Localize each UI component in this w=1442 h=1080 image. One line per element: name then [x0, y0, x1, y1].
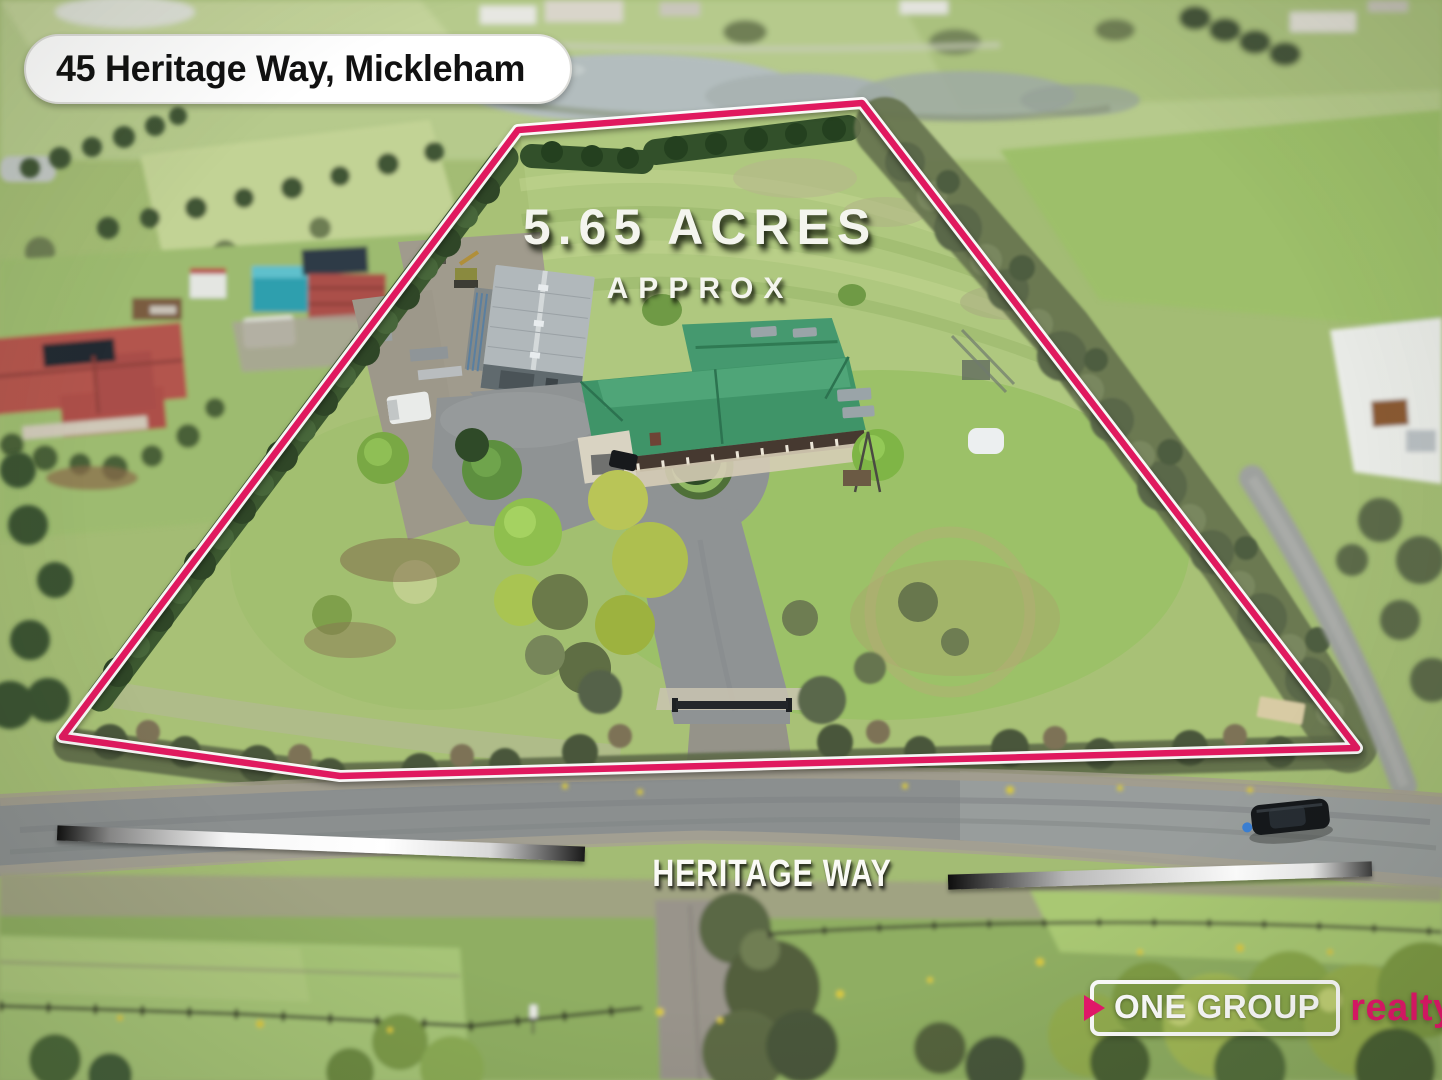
listing-photo: 45 Heritage Way, Mickleham 5.65 ACRES AP… — [0, 0, 1442, 1080]
acreage-qualifier: APPROX — [470, 272, 930, 306]
agency-brand-text: ONE GROUP — [1114, 988, 1320, 1025]
acreage-label: 5.65 ACRES APPROX — [470, 198, 930, 306]
agency-logo: ONE GROUP realty — [1090, 980, 1442, 1036]
address-text: 45 Heritage Way, Mickleham — [56, 48, 525, 90]
agency-suffix-text: realty — [1350, 987, 1442, 1030]
road-name-label: HERITAGE WAY — [636, 853, 908, 896]
acreage-value: 5.65 ACRES — [470, 198, 930, 256]
motorhome — [386, 391, 431, 425]
aerial-scenery — [0, 0, 1442, 1080]
agency-logo-box: ONE GROUP — [1090, 980, 1340, 1036]
address-badge: 45 Heritage Way, Mickleham — [24, 34, 572, 104]
play-triangle-icon — [1084, 995, 1105, 1021]
